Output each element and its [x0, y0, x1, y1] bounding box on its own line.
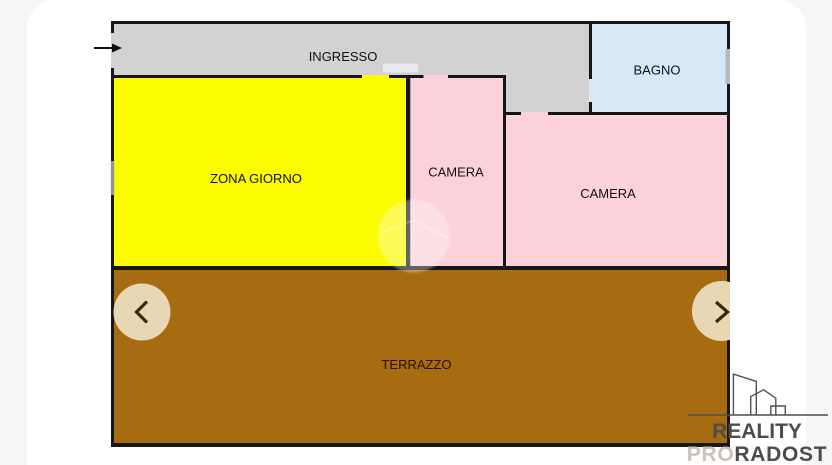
svg-text:INGRESSO: INGRESSO — [309, 49, 378, 64]
svg-text:PRORADOST: PRORADOST — [687, 443, 827, 465]
svg-text:BAGNO: BAGNO — [634, 63, 681, 78]
svg-text:CAMERA: CAMERA — [580, 186, 636, 201]
svg-text:TERRAZZO: TERRAZZO — [381, 357, 451, 372]
svg-text:CAMERA: CAMERA — [428, 165, 484, 180]
svg-text:ZONA GIORNO: ZONA GIORNO — [210, 171, 302, 186]
svg-text:REALITY: REALITY — [712, 420, 802, 443]
